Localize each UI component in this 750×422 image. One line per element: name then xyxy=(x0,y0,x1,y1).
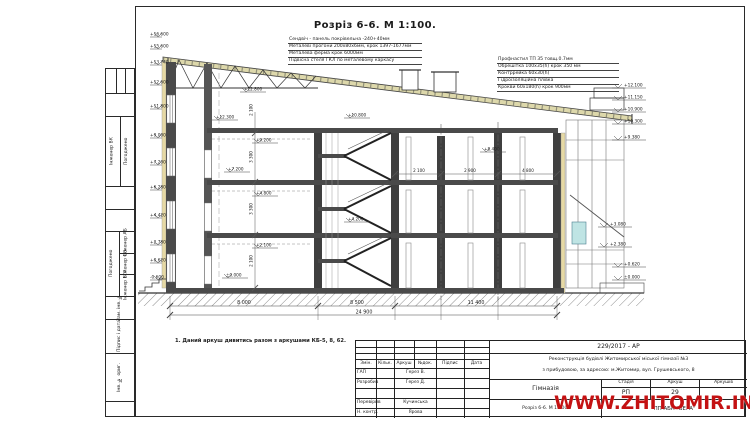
svg-text:8 000: 8 000 xyxy=(237,300,251,306)
svg-text:+9.000: +9.000 xyxy=(150,132,166,138)
svg-text:+7.200: +7.200 xyxy=(228,166,244,171)
building-section-drawing: +16.600 +15.600 +13.740 +12.600 +11.800 … xyxy=(135,28,650,320)
margin-label-inv-orig: Інв. № ориг. xyxy=(106,353,135,401)
svg-text:+15.600: +15.600 xyxy=(150,43,169,49)
svg-text:+0.620: +0.620 xyxy=(624,261,640,267)
margin-label-engineer-vk: Інженер ВК xyxy=(106,116,120,186)
svg-text:2 100: 2 100 xyxy=(413,168,425,173)
svg-text:-0.600: -0.600 xyxy=(150,274,164,280)
svg-text:2 100: 2 100 xyxy=(249,104,254,116)
tb-header-zmin: Змін. xyxy=(356,359,376,368)
tb-role-checker: Перевірив xyxy=(357,398,394,408)
strip-divider xyxy=(106,209,134,210)
svg-text:11 400: 11 400 xyxy=(468,300,485,306)
svg-text:+0.620: +0.620 xyxy=(150,257,166,263)
svg-text:3 300: 3 300 xyxy=(249,151,254,163)
svg-text:+16.600: +16.600 xyxy=(150,31,169,37)
glazed-door xyxy=(572,222,586,244)
svg-text:+3.080: +3.080 xyxy=(610,221,626,227)
margin-strip: Інженер ВК Погоджено Погоджено Інженер А… xyxy=(105,68,135,417)
floor-slabs xyxy=(166,128,564,293)
svg-text:+2.100: +2.100 xyxy=(256,242,272,247)
svg-text:+10.900: +10.900 xyxy=(624,106,643,112)
tb-doc-number: 229/2017 - АР xyxy=(490,341,747,353)
svg-text:+12.100: +12.100 xyxy=(624,82,643,88)
strip-divider xyxy=(125,69,126,93)
svg-text:+2.780: +2.780 xyxy=(150,239,166,245)
svg-text:+12.300: +12.300 xyxy=(216,114,234,119)
tb-project-line2: з прибудовою, за адресою: м.Житомир, вул… xyxy=(494,365,743,377)
sheet-footnote: 1. Даний аркуш дивитись разом з аркушами… xyxy=(175,338,346,344)
svg-text:+4.200: +4.200 xyxy=(348,216,364,221)
margin-label-agreed-2: Погоджено xyxy=(106,231,119,296)
tb-header-data: Дата xyxy=(464,359,489,368)
svg-text:+4.800: +4.800 xyxy=(256,190,272,195)
svg-text:+10.300: +10.300 xyxy=(624,118,643,124)
tb-header-pidpys: Підпис xyxy=(436,359,464,368)
strip-divider xyxy=(106,401,134,402)
svg-text:2 900: 2 900 xyxy=(464,168,476,173)
right-elevation-marks: +12.100 +11.150 +10.900 +10.300 +9.380 +… xyxy=(598,82,646,280)
svg-text:+12.800: +12.800 xyxy=(244,86,262,91)
svg-text:+10.800: +10.800 xyxy=(348,112,366,117)
tb-role-ncontrol: Н. контр. xyxy=(357,408,394,418)
svg-text:+12.600: +12.600 xyxy=(150,79,169,85)
interior-wall xyxy=(204,64,219,290)
strip-divider xyxy=(106,186,134,187)
margin-label-zam-inv: Зам. інв. № xyxy=(106,296,135,319)
strip-divider xyxy=(116,69,117,93)
tb-name-gap: Герез В. xyxy=(395,368,436,378)
svg-text:+11.800: +11.800 xyxy=(150,103,169,109)
svg-text:+13.740: +13.740 xyxy=(150,59,169,65)
svg-text:2 100: 2 100 xyxy=(249,255,254,267)
margin-label-engineer-etr: Інженер ЕТР xyxy=(119,274,135,296)
margin-label-signature-date: Підпис і дата xyxy=(106,319,135,353)
staircase xyxy=(318,130,391,288)
margin-label-agreed-1: Погоджено xyxy=(120,116,135,186)
ground-hatch xyxy=(138,293,644,306)
tb-name-ncontrol: Ярова xyxy=(395,408,436,418)
wall-axis-a xyxy=(162,62,176,288)
svg-text:4 800: 4 800 xyxy=(522,168,534,173)
svg-text:+7.200: +7.200 xyxy=(150,159,166,165)
svg-text:±0.000: ±0.000 xyxy=(226,272,242,277)
strip-divider xyxy=(106,93,134,94)
tb-stage-label: Стадія xyxy=(602,379,650,387)
tb-name-developer: Герез Д. xyxy=(395,378,436,388)
svg-text:3 300: 3 300 xyxy=(249,203,254,215)
svg-text:+9.200: +9.200 xyxy=(256,137,272,142)
svg-text:±0.000: ±0.000 xyxy=(624,274,640,280)
tb-sheet-label: Аркуш xyxy=(651,379,699,387)
tb-header-doc: №док. xyxy=(414,359,436,368)
svg-text:+2.380: +2.380 xyxy=(610,241,626,247)
tb-sheets-label: Аркушів xyxy=(700,379,747,387)
watermark: WWW.ZHITOMIR.INFO xyxy=(554,393,750,414)
svg-text:+9.380: +9.380 xyxy=(624,134,640,140)
svg-text:8 500: 8 500 xyxy=(350,300,364,306)
right-bay-partitions xyxy=(406,137,525,288)
right-bay-dims: 2 100 2 900 4 800 xyxy=(392,168,560,177)
tb-name-checker: Кучинська xyxy=(395,398,436,408)
svg-text:+4.420: +4.420 xyxy=(150,212,166,218)
svg-text:+6.280: +6.280 xyxy=(150,184,166,190)
tb-role-developer: Розробив xyxy=(357,378,394,388)
svg-text:+11.150: +11.150 xyxy=(624,94,643,100)
svg-text:24 900: 24 900 xyxy=(356,309,373,315)
tb-header-arkush: Аркуш xyxy=(394,359,414,368)
tb-header-kilk: Кільк. xyxy=(376,359,394,368)
tb-role-gap: ГАП xyxy=(357,368,394,378)
svg-text:+8.400: +8.400 xyxy=(484,146,500,151)
